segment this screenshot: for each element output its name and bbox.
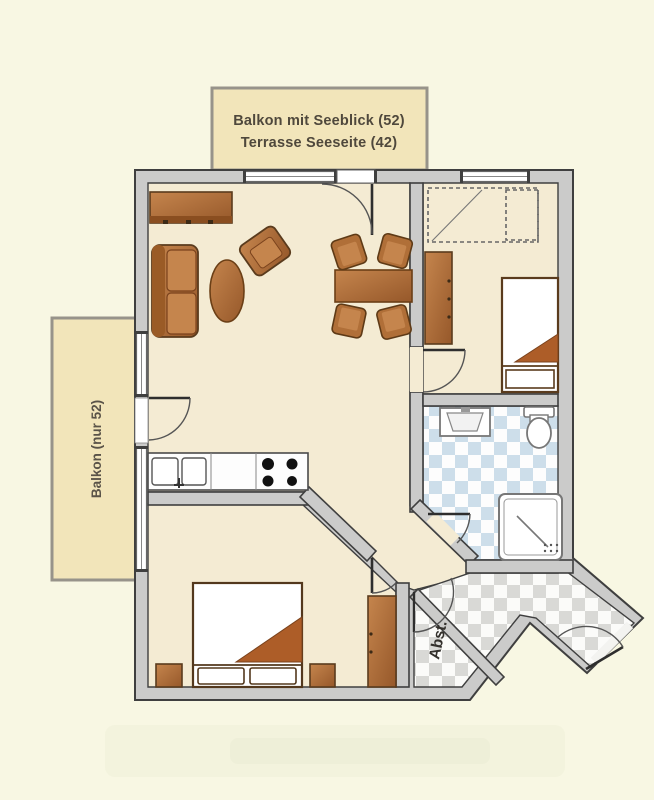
cabinet <box>425 252 452 344</box>
floor-plan-drawing: Balkon mit Seeblick (52) Terrasse Seesei… <box>0 0 654 800</box>
dining-chair <box>377 233 414 270</box>
wardrobe <box>368 596 396 687</box>
dining-table <box>335 270 412 302</box>
balcony-left: Balkon (nur 52) <box>52 318 140 580</box>
balcony-top-label-line1: Balkon mit Seeblick (52) <box>233 113 405 129</box>
wall-kitchen <box>148 492 310 505</box>
balcony-left-label: Balkon (nur 52) <box>89 400 104 498</box>
toilet <box>524 407 554 448</box>
window-left-kitchen <box>135 446 148 572</box>
single-bed <box>502 278 558 392</box>
sideboard <box>150 192 232 224</box>
dining-chair <box>331 303 367 339</box>
wall-bedroom-right <box>396 583 409 687</box>
window-bedroom-top <box>460 170 530 183</box>
kitchen-sink-bowl <box>182 458 206 485</box>
nightstand <box>310 664 335 687</box>
pillow <box>198 668 244 684</box>
floor-plan-page: Balkon mit Seeblick (52) Terrasse Seesei… <box>0 0 654 800</box>
shower <box>499 494 562 560</box>
dining-chair <box>376 304 412 340</box>
coffee-table <box>210 260 244 322</box>
double-bed <box>193 583 302 687</box>
sofa <box>152 245 198 337</box>
window-left-living <box>135 331 148 397</box>
kitchen-sink-bowl <box>152 458 178 485</box>
wall-bath-bottom <box>466 560 573 573</box>
washbasin <box>440 407 490 436</box>
pillow <box>250 668 296 684</box>
watermark <box>105 725 565 777</box>
kitchen <box>148 453 308 490</box>
balcony-top-label-line2: Terrasse Seeseite (42) <box>241 135 397 151</box>
wall-bath-left <box>410 392 423 512</box>
wall-living-bedroom <box>410 183 423 347</box>
wall-bath-top <box>423 394 558 406</box>
window-balcony-top <box>243 170 337 183</box>
balcony-top: Balkon mit Seeblick (52) Terrasse Seesei… <box>212 88 427 170</box>
nightstand <box>156 664 182 687</box>
